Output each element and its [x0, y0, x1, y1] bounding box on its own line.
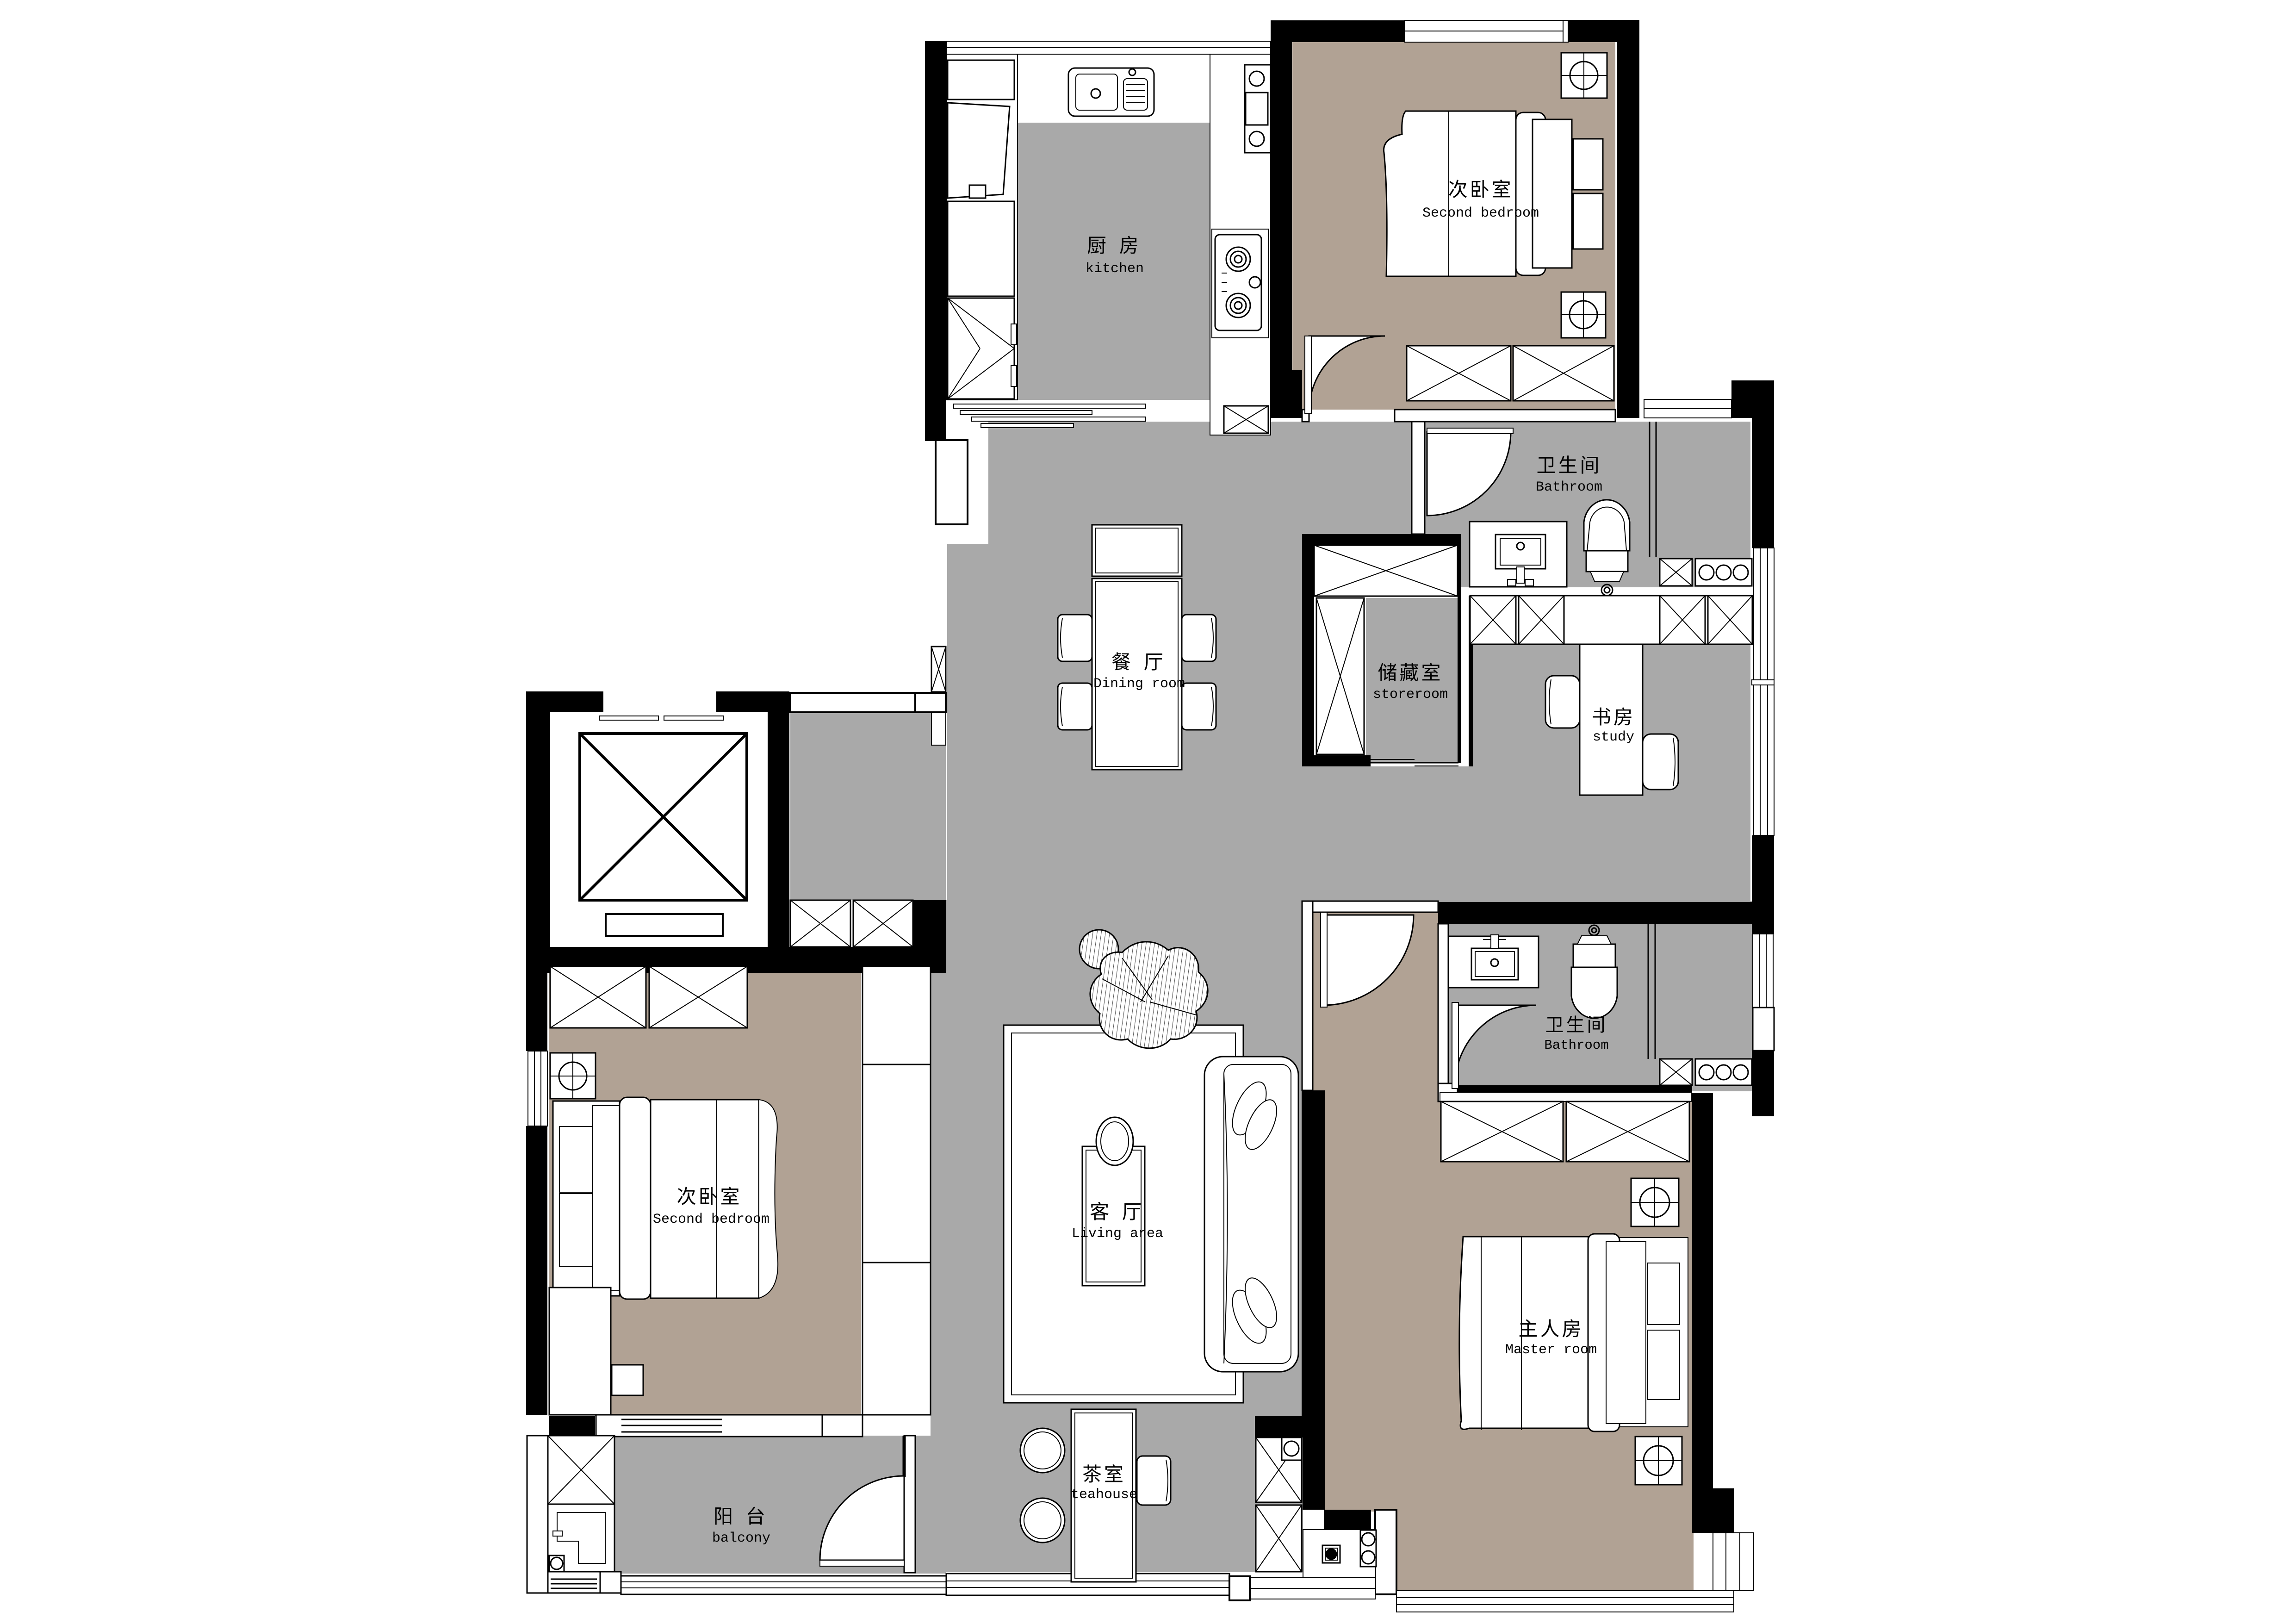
svg-text:Second bedroom: Second bedroom [1422, 205, 1539, 221]
svg-text:卫生间: 卫生间 [1536, 454, 1601, 476]
svg-text:主人房: 主人房 [1518, 1318, 1583, 1340]
svg-text:卫生间: 卫生间 [1545, 1015, 1608, 1035]
svg-text:Dining room: Dining room [1093, 676, 1185, 692]
svg-text:储藏室: 储藏室 [1378, 662, 1443, 684]
svg-text:客 厅: 客 厅 [1090, 1201, 1145, 1223]
svg-text:Bathroom: Bathroom [1536, 479, 1602, 495]
svg-text:balcony: balcony [712, 1531, 770, 1546]
svg-text:Living area: Living area [1072, 1226, 1163, 1242]
svg-text:阳 台: 阳 台 [714, 1506, 769, 1527]
svg-text:厨 房: 厨 房 [1087, 235, 1142, 256]
svg-text:次卧室: 次卧室 [676, 1186, 742, 1207]
svg-text:study: study [1593, 729, 1634, 745]
svg-text:Master room: Master room [1505, 1342, 1597, 1358]
svg-text:餐 厅: 餐 厅 [1111, 651, 1167, 673]
svg-text:书房: 书房 [1592, 706, 1635, 728]
svg-text:kitchen: kitchen [1086, 261, 1144, 277]
svg-text:storeroom: storeroom [1373, 687, 1448, 703]
svg-text:茶室: 茶室 [1082, 1463, 1126, 1485]
svg-text:次卧室: 次卧室 [1448, 179, 1513, 200]
svg-text:Second bedroom: Second bedroom [653, 1212, 769, 1227]
svg-text:teahouse: teahouse [1071, 1487, 1137, 1503]
svg-text:Bathroom: Bathroom [1544, 1038, 1608, 1053]
